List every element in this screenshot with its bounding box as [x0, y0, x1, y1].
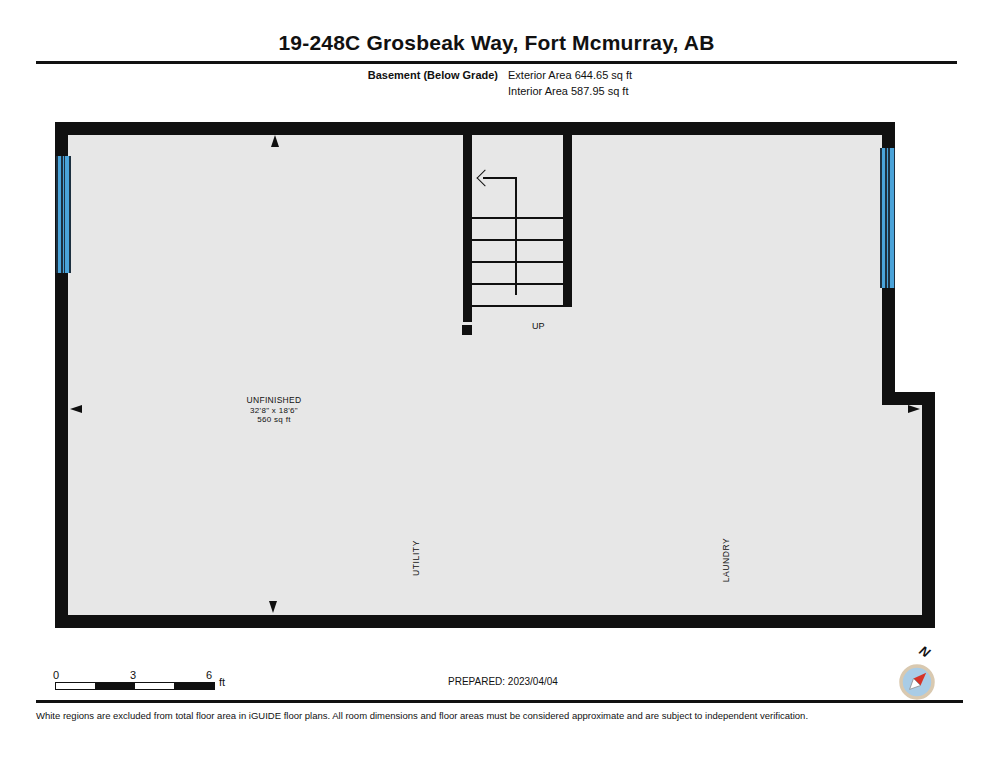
title-divider [36, 61, 957, 64]
dimension-arrow-down-icon [269, 601, 277, 613]
stair-tread [472, 261, 563, 263]
room-label-unfinished: UNFINISHED 32'8" x 18'6" 560 sq ft [204, 396, 344, 425]
wall-right-lower [922, 392, 935, 628]
stair-direction-line [515, 177, 517, 295]
dimension-arrow-left-icon [70, 405, 82, 413]
room-label-utility: UTILITY [411, 540, 421, 576]
stair-wall-right [563, 135, 572, 307]
room-dimensions: 32'8" x 18'6" [204, 406, 344, 416]
wall-top [55, 122, 895, 135]
stair-tread [472, 239, 563, 241]
stair-tread [472, 217, 563, 219]
room-interior-right-notch [882, 405, 922, 615]
window-left [56, 156, 71, 273]
stair-wall-post [462, 325, 472, 335]
room-name: UNFINISHED [204, 396, 344, 406]
footer-divider [36, 700, 963, 703]
prepared-date: PREPARED: 2023/04/04 [448, 676, 558, 687]
wall-bottom [55, 615, 935, 628]
window-right [880, 148, 895, 288]
exterior-area-text: Exterior Area 644.65 sq ft [508, 69, 632, 81]
scale-tick-6: 6 [206, 669, 212, 681]
room-area: 560 sq ft [204, 415, 344, 425]
floor-plan-page: 19-248C Grosbeak Way, Fort Mcmurray, AB … [0, 0, 993, 768]
dimension-arrow-up-icon [271, 135, 279, 147]
compass-icon [897, 662, 937, 702]
compass-north-label: N [917, 643, 933, 661]
scale-bar [55, 682, 215, 690]
scale-unit: ft [219, 676, 225, 688]
room-interior-main [68, 135, 882, 615]
stairs-up-label: UP [532, 321, 545, 331]
stair-wall-left [463, 135, 472, 322]
stair-tread [472, 305, 563, 307]
interior-area-text: Interior Area 587.95 sq ft [508, 85, 628, 97]
room-label-laundry: LAUNDRY [721, 538, 731, 583]
scale-tick-3: 3 [130, 669, 136, 681]
scale-tick-0: 0 [53, 669, 59, 681]
dimension-arrow-right-icon [908, 405, 920, 413]
disclaimer-text: White regions are excluded from total fl… [36, 710, 956, 721]
page-title: 19-248C Grosbeak Way, Fort Mcmurray, AB [0, 31, 993, 55]
floor-label: Basement (Below Grade) [280, 69, 498, 81]
stair-tread [472, 283, 563, 285]
